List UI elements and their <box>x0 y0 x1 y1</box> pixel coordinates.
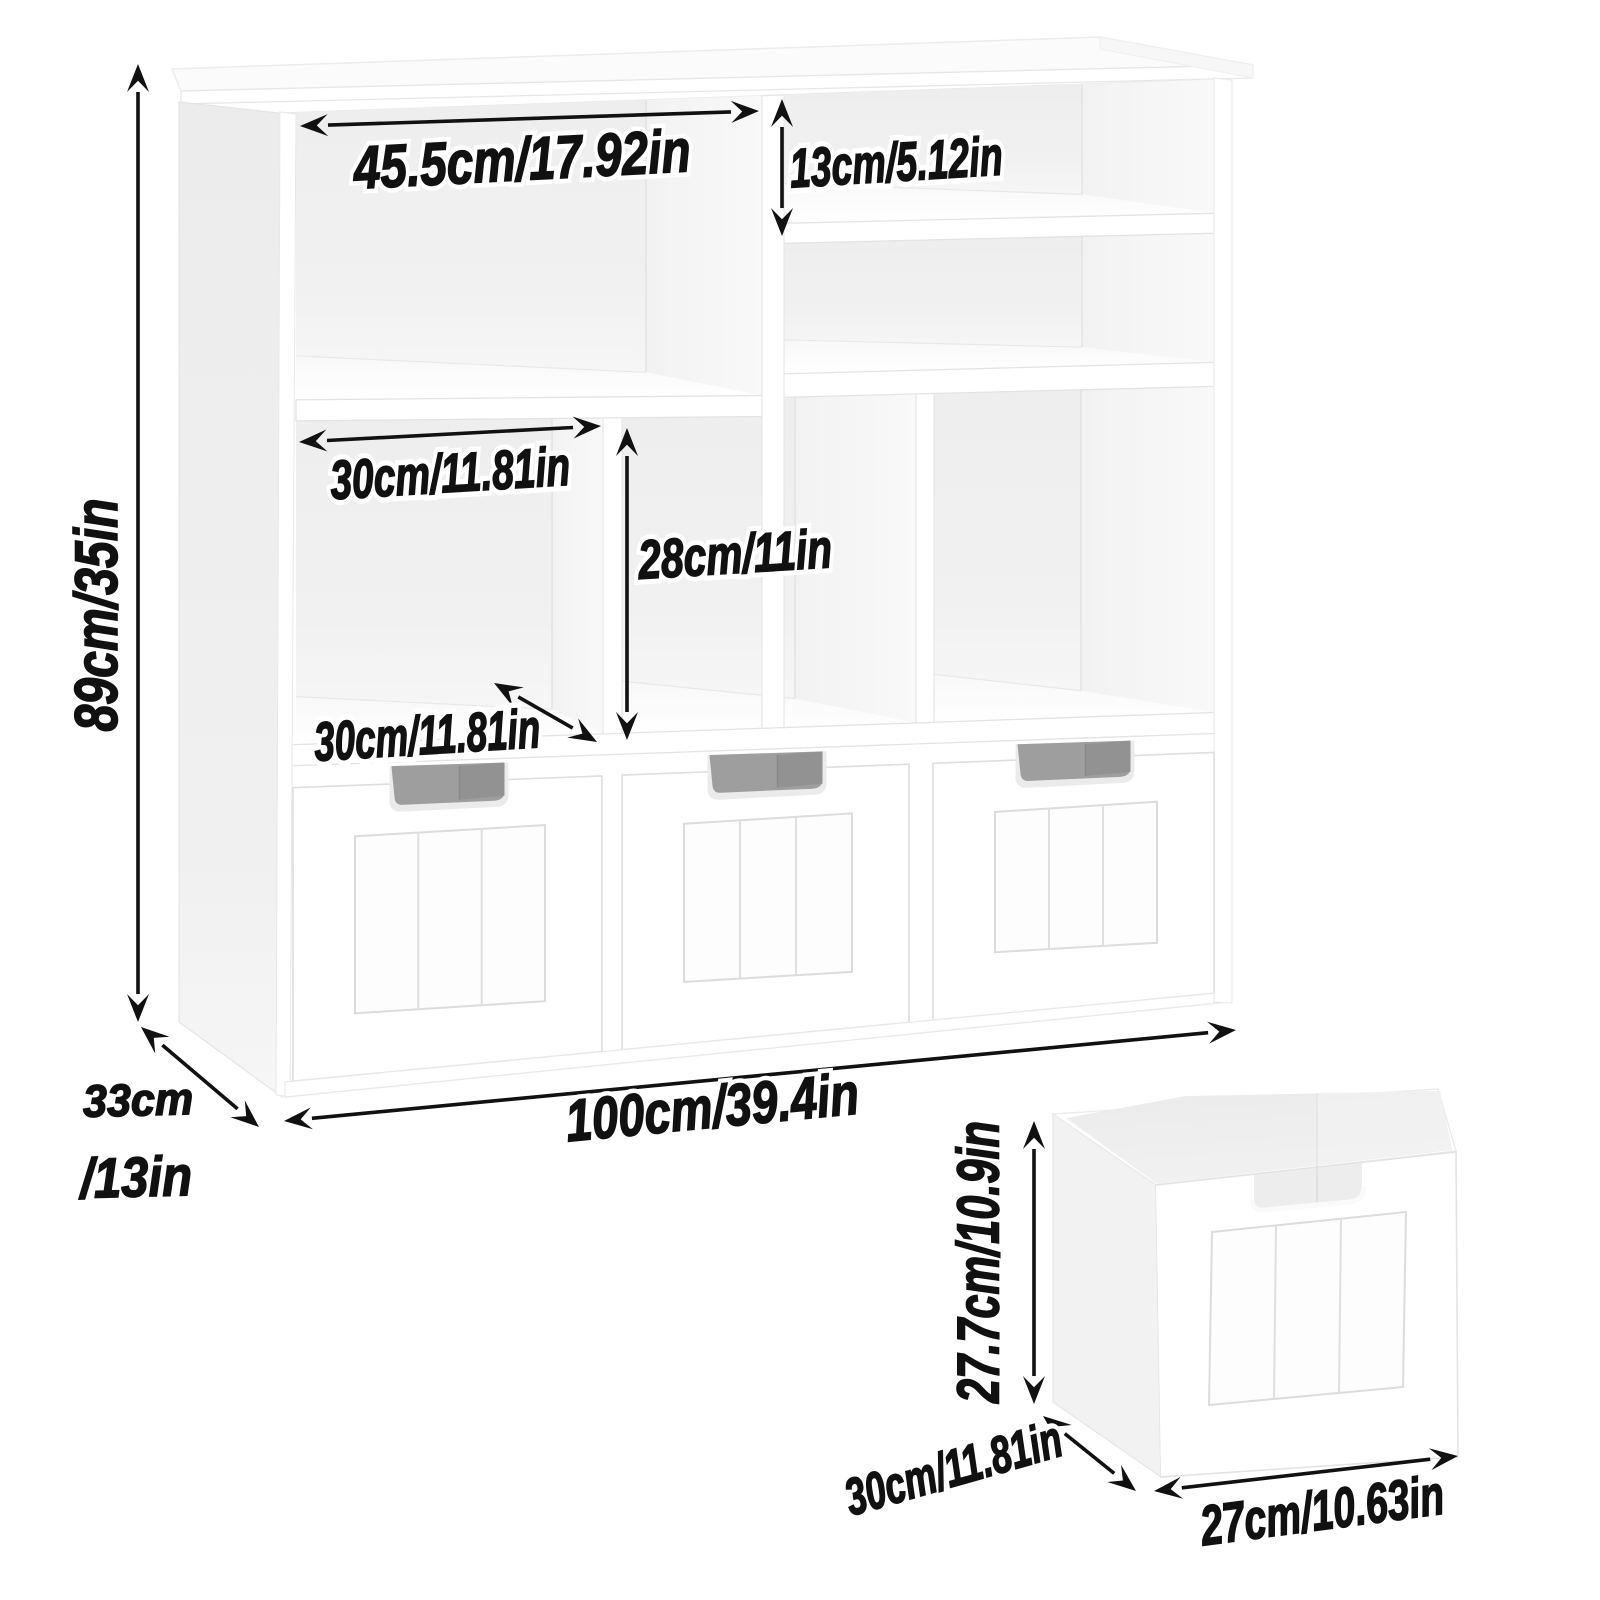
svg-text:33cm: 33cm <box>82 1074 193 1127</box>
svg-text:100cm/39.4in: 100cm/39.4in <box>563 1062 862 1155</box>
svg-text:27cm/10.63in: 27cm/10.63in <box>1196 1464 1448 1558</box>
svg-text:28cm/11in: 28cm/11in <box>636 518 834 591</box>
svg-text:30cm/11.81in: 30cm/11.81in <box>838 1409 1069 1527</box>
svg-text:89cm/35in: 89cm/35in <box>63 498 130 731</box>
svg-text:27.7cm/10.9in: 27.7cm/10.9in <box>945 1121 1011 1404</box>
svg-text:13cm/5.12in: 13cm/5.12in <box>788 124 1005 199</box>
svg-text:/13in: /13in <box>77 1145 192 1211</box>
